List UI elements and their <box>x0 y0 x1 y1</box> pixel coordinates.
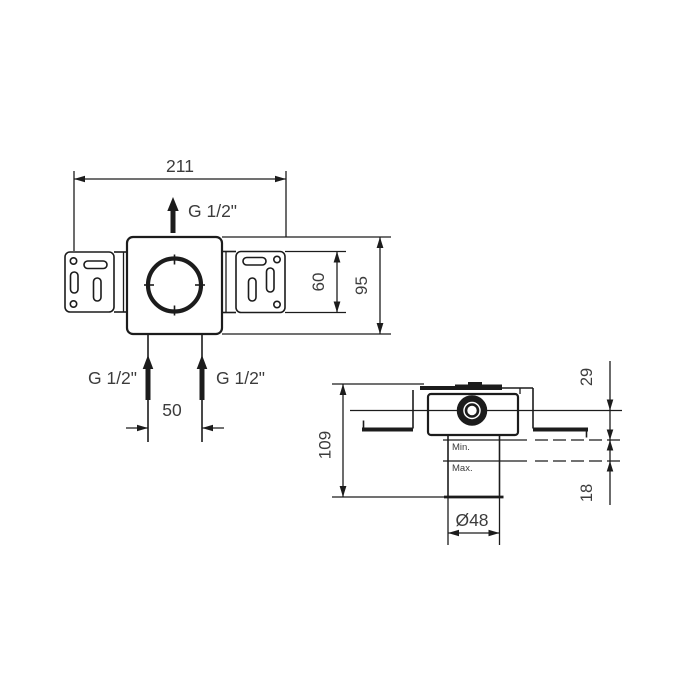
min-label: Min. <box>452 442 470 453</box>
dim-rail-height: 60 <box>285 252 346 313</box>
front-view: 211 G 1/2" <box>65 156 391 442</box>
fixing-screw-center <box>466 405 478 417</box>
dim-pipe-diameter-label: Ø48 <box>455 510 488 530</box>
dim-adjustment-range-label: 18 <box>578 484 596 502</box>
mounting-slot <box>249 278 257 301</box>
up-arrow-icon <box>197 355 208 369</box>
dim-total-depth: 109 <box>316 384 447 497</box>
valve-body-side <box>350 384 622 438</box>
side-view: 109 <box>316 361 623 545</box>
top-outlet-connection: G 1/2" <box>167 197 237 233</box>
mounting-slot <box>243 258 266 266</box>
dim-center-to-min-label: 29 <box>578 368 596 386</box>
dim-body-height-label: 95 <box>352 276 371 295</box>
right-inlet-label: G 1/2" <box>216 368 265 388</box>
dim-total-depth-label: 109 <box>316 431 335 459</box>
valve-body-front <box>127 237 222 334</box>
dim-inlet-spacing: 50 <box>126 400 224 431</box>
valve-technical-drawing: 211 G 1/2" <box>0 0 700 700</box>
dim-inlet-spacing-label: 50 <box>162 400 182 420</box>
up-arrow-icon <box>143 355 154 369</box>
mounting-slot <box>84 261 107 269</box>
max-label: Max. <box>452 463 473 474</box>
dim-overall-width-label: 211 <box>166 156 194 176</box>
dim-pipe-diameter: Ø48 <box>448 510 500 536</box>
mounting-plate-left <box>65 252 127 312</box>
mounting-plate-right <box>222 252 285 313</box>
dim-rail-height-label: 60 <box>309 273 328 292</box>
up-arrow-icon <box>167 197 178 211</box>
top-outlet-label: G 1/2" <box>188 201 237 221</box>
mounting-slot <box>267 268 275 292</box>
min-max-lines: Min. Max. <box>443 440 621 474</box>
mounting-slot <box>71 272 79 293</box>
technical-drawing-page: 211 G 1/2" <box>0 0 700 700</box>
left-inlet-label: G 1/2" <box>88 368 137 388</box>
bottom-inlets: G 1/2" G 1/2" <box>88 334 265 442</box>
dim-right-stack: 29 18 <box>578 361 613 505</box>
mounting-slot <box>94 278 102 301</box>
